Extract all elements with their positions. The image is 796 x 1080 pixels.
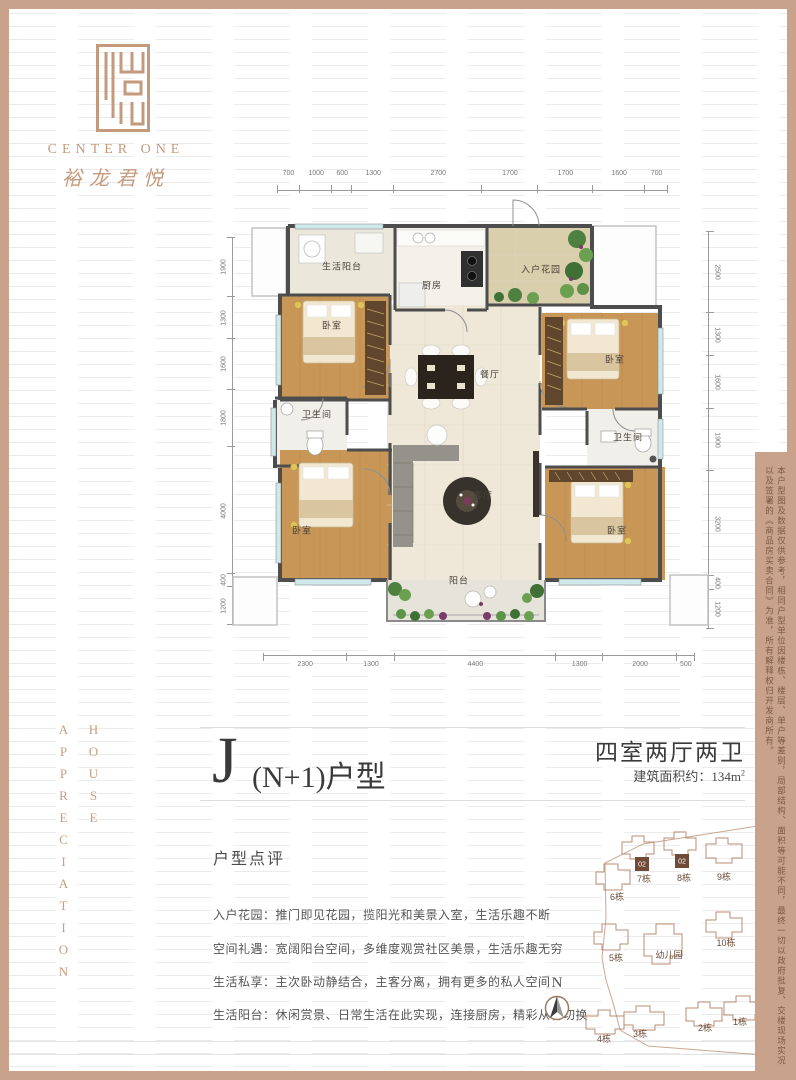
highlight-unit-7: 02 — [638, 862, 646, 869]
building-label-7: 7栋 — [637, 873, 651, 884]
room-label-kitchen: 厨房 — [422, 279, 442, 292]
brand-name-cn: 裕龙君悦 — [36, 162, 196, 191]
dimension-segment: 2700 — [394, 170, 482, 190]
room-label-dining: 餐厅 — [480, 368, 500, 381]
review-item-4: 生活阳台：休闲赏景、日常生活在此实现，连接厨房，精彩从容切换 — [213, 1006, 588, 1023]
dimension-segment: 700 — [277, 170, 300, 190]
unit-letter: J — [212, 728, 238, 794]
dimension-segment: 1000 — [300, 170, 333, 190]
building-label-8: 8栋 — [677, 872, 691, 883]
floorplan-drawing — [215, 195, 755, 635]
building-label-1: 1栋 — [733, 1016, 747, 1027]
disclaimer-band: 本户型图及数据仅供参考，相同户型单位因楼栋、楼层、单户等差别，局部结构、面积等可… — [755, 452, 796, 1080]
review-item-2: 空间礼遇：宽阔阳台空间，多维度观赏社区美景，生活乐趣无穷 — [213, 940, 563, 957]
building-label-3: 3栋 — [633, 1028, 647, 1039]
dimension-segment: 1300 — [347, 656, 395, 676]
brand-name-en: CENTER ONE — [36, 142, 196, 158]
area-value: 134m — [711, 769, 741, 784]
north-label: N — [540, 975, 574, 992]
dimension-segment: 1600 — [593, 170, 645, 190]
building-label-5: 5栋 — [609, 952, 623, 963]
building-label-10: 10栋 — [716, 937, 735, 948]
room-label-bathroom-left: 卫生间 — [302, 408, 332, 421]
dimension-row-top: 700100060013002700170017001600700 — [277, 170, 668, 191]
review-heading: 户型点评 — [213, 845, 285, 869]
dimension-segment: 1700 — [538, 170, 593, 190]
building-label-4: 4栋 — [597, 1033, 611, 1044]
side-word-appreciation: APPRECIATION — [55, 722, 71, 986]
dimension-row-bottom: 23001300440013002000500 — [263, 655, 695, 676]
unit-spec: 四室两厅两卫 — [595, 733, 745, 767]
room-label-bedroom-tr: 卧室 — [605, 353, 625, 366]
dimension-segment: 700 — [645, 170, 668, 190]
unit-type-title: (N+1)户型 — [252, 752, 386, 796]
building-label-2: 2栋 — [698, 1022, 712, 1033]
north-indicator: N — [540, 975, 574, 1027]
siteplan-map: 02 02 7栋 8栋 9栋 6栋 10栋 5栋 4栋 3栋 2栋 1栋 幼儿园 — [548, 818, 780, 1070]
compass-icon — [542, 992, 572, 1022]
dimension-segment: 1700 — [482, 170, 537, 190]
dimension-segment: 500 — [677, 656, 695, 676]
review-item-1: 入户花园：推门即见花园，揽阳光和美景入室，生活乐趣不断 — [213, 906, 551, 923]
room-label-bedroom-br: 卧室 — [607, 524, 627, 537]
review-item-3: 生活私享：主次卧动静结合，主客分离，拥有更多的私人空间 — [213, 973, 551, 990]
room-label-bedroom-bl: 卧室 — [292, 524, 312, 537]
dimension-segment: 2000 — [603, 656, 676, 676]
room-label-balcony: 阳台 — [449, 574, 469, 587]
area-sup: 2 — [741, 769, 745, 778]
kindergarten-label: 幼儿园 — [655, 949, 682, 960]
disclaimer-text: 本户型图及数据仅供参考，相同户型单位因楼栋、楼层、单户等差别，局部结构、面积等可… — [764, 466, 788, 1066]
highlight-unit-8: 02 — [678, 859, 686, 866]
brand-seal-icon — [96, 44, 150, 132]
unit-area: 建筑面积约：134m2 — [633, 766, 745, 785]
building-label-9: 9栋 — [717, 871, 731, 882]
building-label-6: 6栋 — [610, 891, 624, 902]
room-label-entry-garden: 入户花园 — [521, 263, 561, 276]
dimension-segment: 600 — [332, 170, 352, 190]
dimension-segment: 1300 — [556, 656, 604, 676]
room-label-living: 客厅 — [473, 489, 493, 502]
side-word-house: HOUSE — [85, 722, 101, 832]
room-label-bedroom-tl: 卧室 — [322, 319, 342, 332]
room-label-life-balcony: 生活阳台 — [322, 260, 362, 273]
dimension-segment: 4400 — [395, 656, 556, 676]
area-label: 建筑面积约： — [633, 769, 711, 784]
divider-title-top — [200, 727, 745, 728]
poster-page: CENTER ONE 裕龙君悦 HOUSE APPRECIATION 70010… — [0, 0, 796, 1080]
dimension-segment: 1300 — [352, 170, 394, 190]
divider-title-bottom — [200, 800, 745, 801]
room-label-bathroom-right: 卫生间 — [613, 431, 643, 444]
dimension-segment: 2300 — [263, 656, 347, 676]
